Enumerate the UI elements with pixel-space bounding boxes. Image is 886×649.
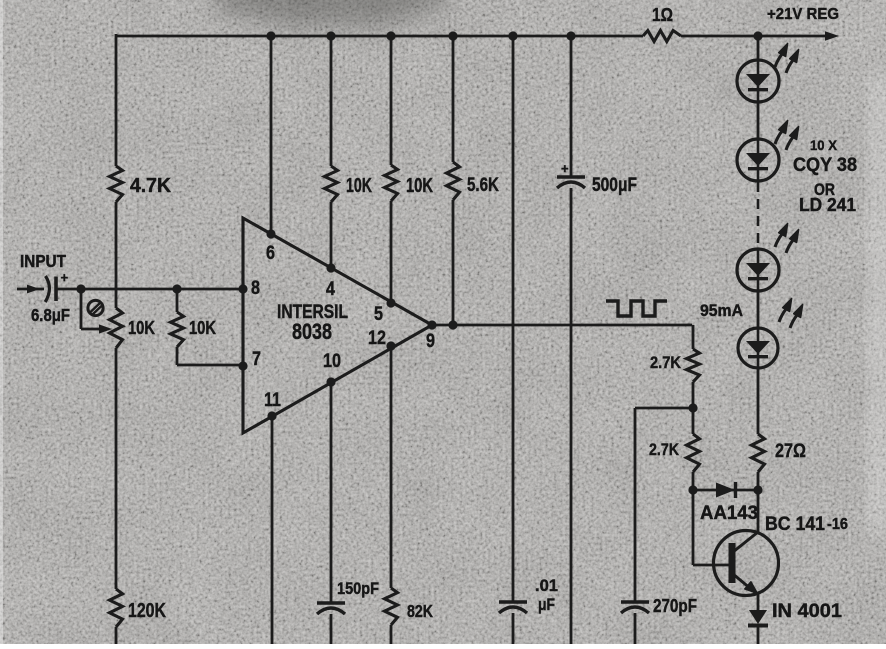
svg-text:10: 10	[323, 351, 341, 372]
svg-text:6.8μF: 6.8μF	[31, 305, 70, 325]
svg-text:10K: 10K	[346, 175, 372, 197]
svg-text:LD 241: LD 241	[799, 194, 856, 215]
svg-text:500μF: 500μF	[592, 174, 637, 196]
svg-text:8038: 8038	[292, 319, 332, 344]
svg-text:7: 7	[252, 349, 261, 370]
svg-text:10K: 10K	[406, 175, 433, 197]
svg-text:82K: 82K	[407, 601, 433, 621]
svg-text:8: 8	[251, 278, 260, 299]
svg-text:IN 4001: IN 4001	[772, 601, 842, 622]
svg-text:10 X: 10 X	[810, 137, 838, 153]
svg-text:4.7K: 4.7K	[130, 175, 172, 197]
svg-text:+21V REG: +21V REG	[767, 6, 839, 23]
svg-text:27Ω: 27Ω	[775, 441, 806, 462]
svg-text:2.7K: 2.7K	[650, 353, 682, 372]
svg-text:11: 11	[264, 390, 281, 411]
svg-text:95mA: 95mA	[700, 302, 743, 320]
svg-text:AA143: AA143	[700, 503, 758, 524]
svg-text:-16: -16	[827, 516, 848, 533]
svg-text:5: 5	[374, 304, 383, 325]
svg-text:4: 4	[326, 279, 335, 300]
svg-text:μF: μF	[538, 595, 555, 614]
svg-text:270pF: 270pF	[653, 596, 697, 616]
svg-text:12: 12	[368, 328, 386, 349]
svg-text:120K: 120K	[128, 600, 166, 622]
svg-text:5.6K: 5.6K	[467, 174, 499, 196]
svg-text:10K: 10K	[189, 317, 216, 338]
svg-text:BC 141: BC 141	[765, 514, 825, 535]
svg-text:+: +	[61, 270, 69, 285]
svg-text:10K: 10K	[128, 317, 155, 338]
svg-text:9: 9	[426, 331, 435, 352]
svg-text:150pF: 150pF	[337, 579, 379, 598]
svg-text:INPUT: INPUT	[20, 251, 66, 271]
svg-text:2.7K: 2.7K	[649, 440, 680, 459]
svg-text:6: 6	[266, 243, 275, 264]
svg-text:+: +	[561, 161, 569, 176]
svg-text:.01: .01	[535, 576, 558, 595]
svg-text:1Ω: 1Ω	[652, 5, 673, 25]
svg-text:CQY 38: CQY 38	[793, 154, 857, 176]
